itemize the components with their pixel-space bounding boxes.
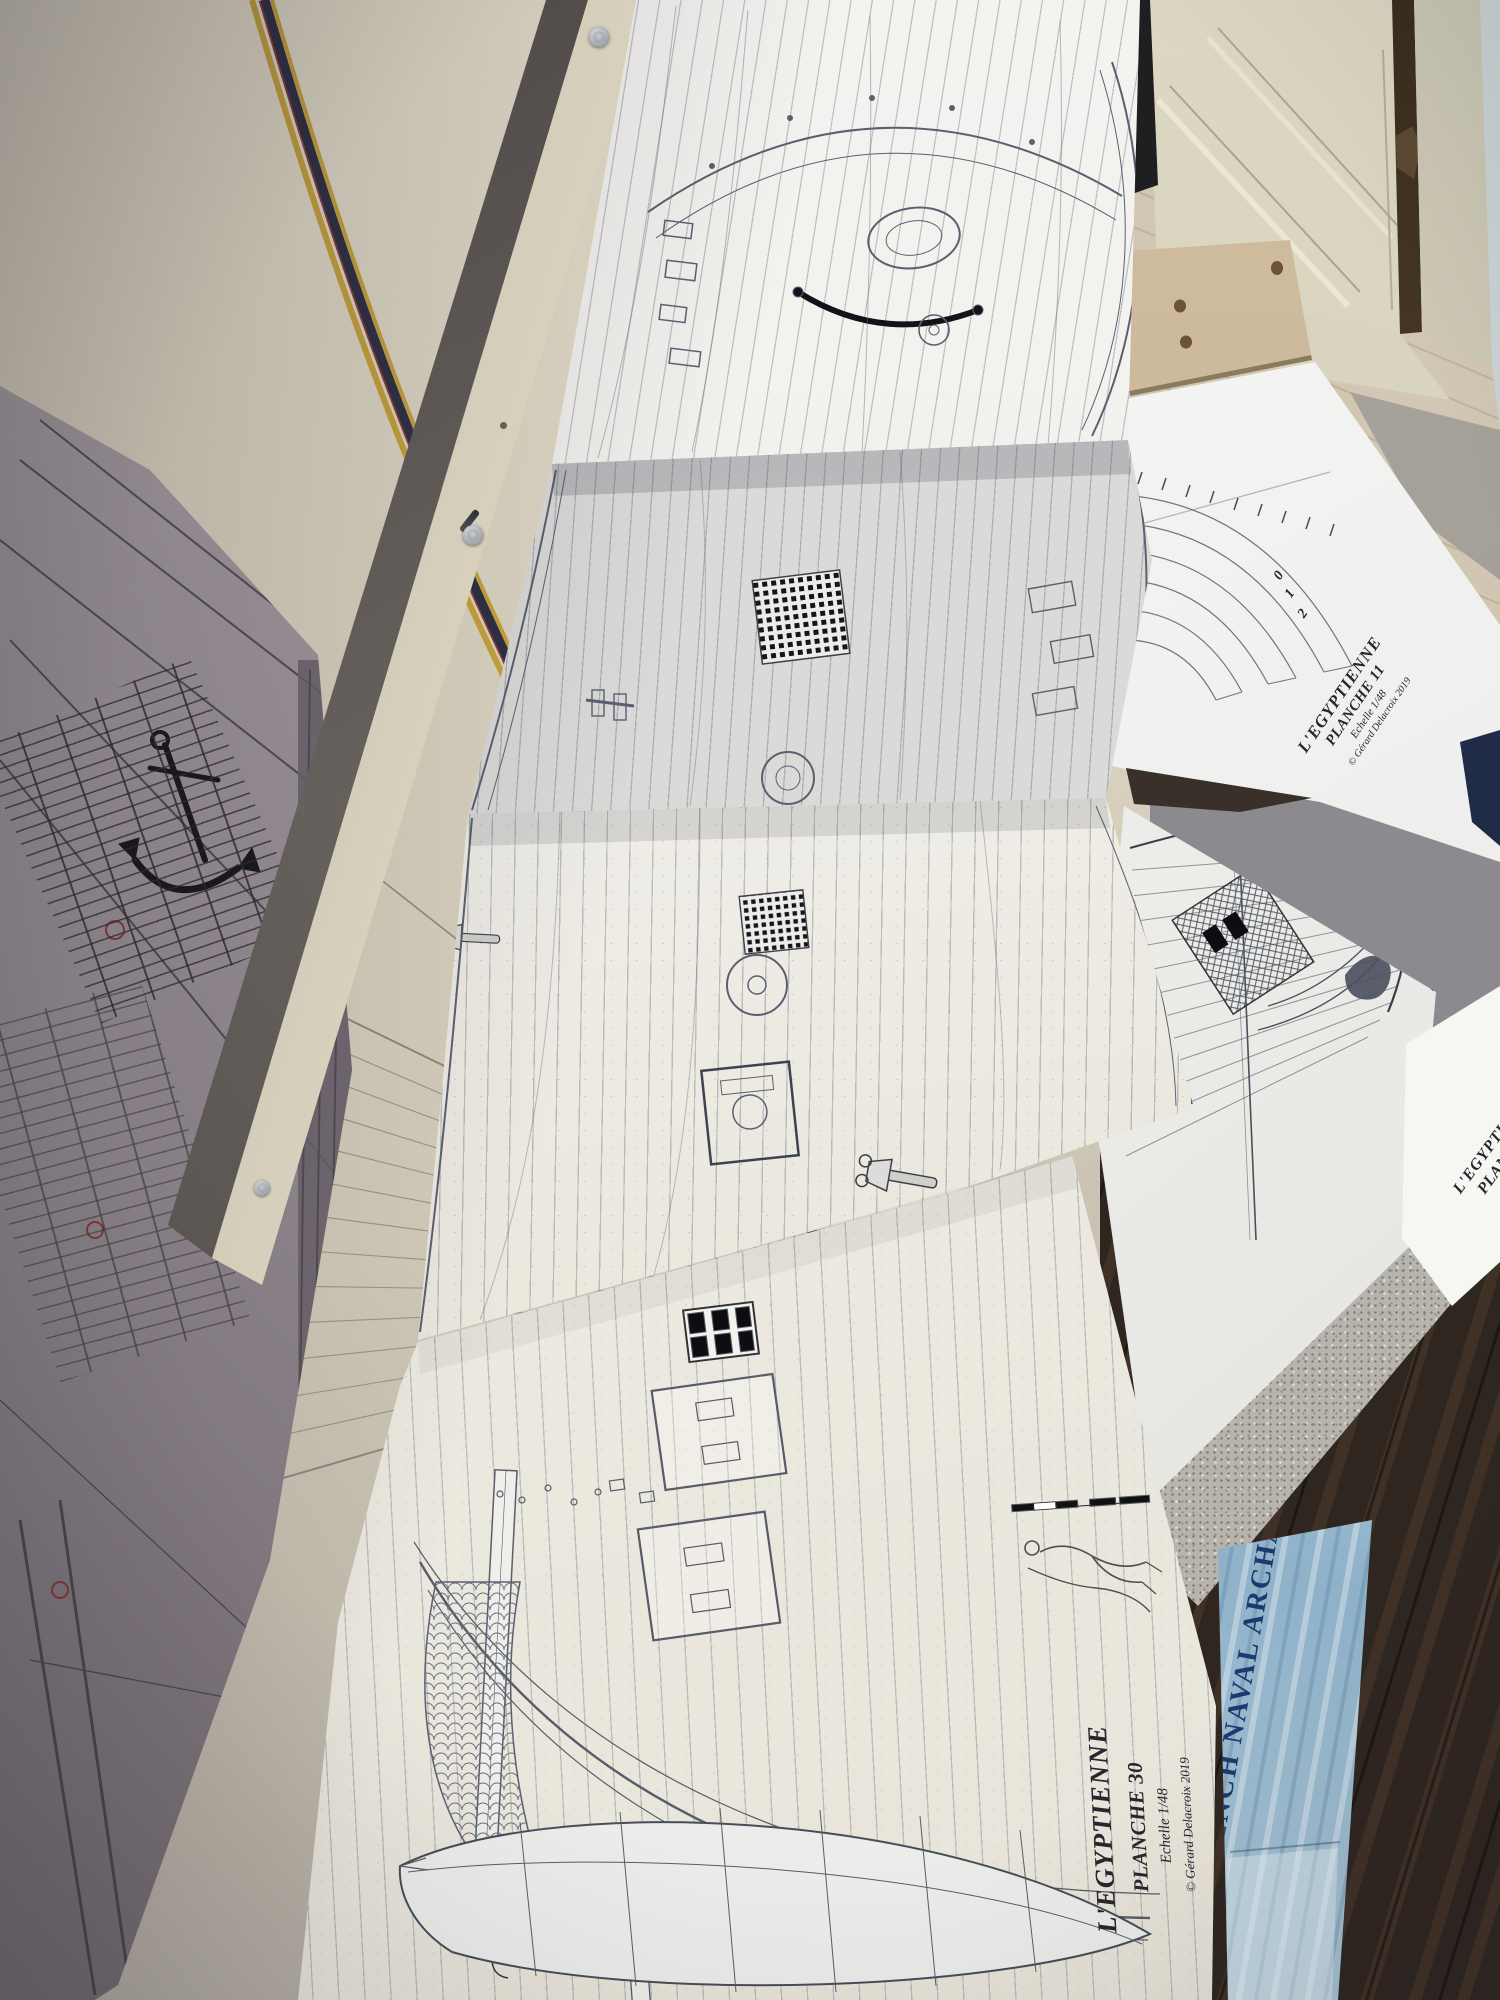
bolt-middle xyxy=(463,525,483,545)
bow-profile-drawing xyxy=(1126,792,1434,1240)
board-hole xyxy=(1271,261,1283,275)
stern-deck-drawing xyxy=(598,6,1139,458)
planche-30-title-block: L'EGYPTIENNE PLANCHE 30 Echelle 1/48 © G… xyxy=(1050,1698,1233,1957)
grating-hatch-2 xyxy=(739,890,809,954)
board-hole xyxy=(1174,300,1186,313)
bolt-top xyxy=(589,27,609,47)
planche-30-scale: Echelle 1/48 xyxy=(1154,1788,1177,1864)
rail-hole xyxy=(500,422,507,429)
foredeck-drawing xyxy=(400,1302,1162,2000)
lattice-deckhouse xyxy=(1172,868,1314,1014)
grating-hatch xyxy=(752,570,850,664)
six-pane-grid xyxy=(683,1302,759,1362)
figurehead xyxy=(1345,956,1391,1000)
board-hole xyxy=(1180,336,1192,349)
planche-30-series: L'EGYPTIENNE xyxy=(1081,1724,1126,1934)
station-ticks xyxy=(1138,472,1334,536)
photo-ship-plans-scene: 2 1 0 L'EGYPTIENNE PLANCHE 11 Echelle 1/… xyxy=(0,0,1500,2000)
bolt-lower xyxy=(254,1180,270,1196)
mid-deck-drawing xyxy=(472,446,1146,810)
cannon-drawing xyxy=(855,1154,939,1199)
hatch-coaming-1 xyxy=(652,1374,787,1490)
planche-30-sheet-number: PLANCHE 30 xyxy=(1121,1761,1154,1893)
scale-bar xyxy=(1012,1495,1150,1512)
sailor-figures-sketch xyxy=(1025,1541,1162,1612)
eyebolt-row xyxy=(497,1479,655,1505)
planche-30-credit: © Gérard Delacroix 2019 xyxy=(1176,1757,1199,1893)
ships-boat xyxy=(400,1808,1150,1992)
hatch-coaming-2 xyxy=(638,1512,780,1641)
